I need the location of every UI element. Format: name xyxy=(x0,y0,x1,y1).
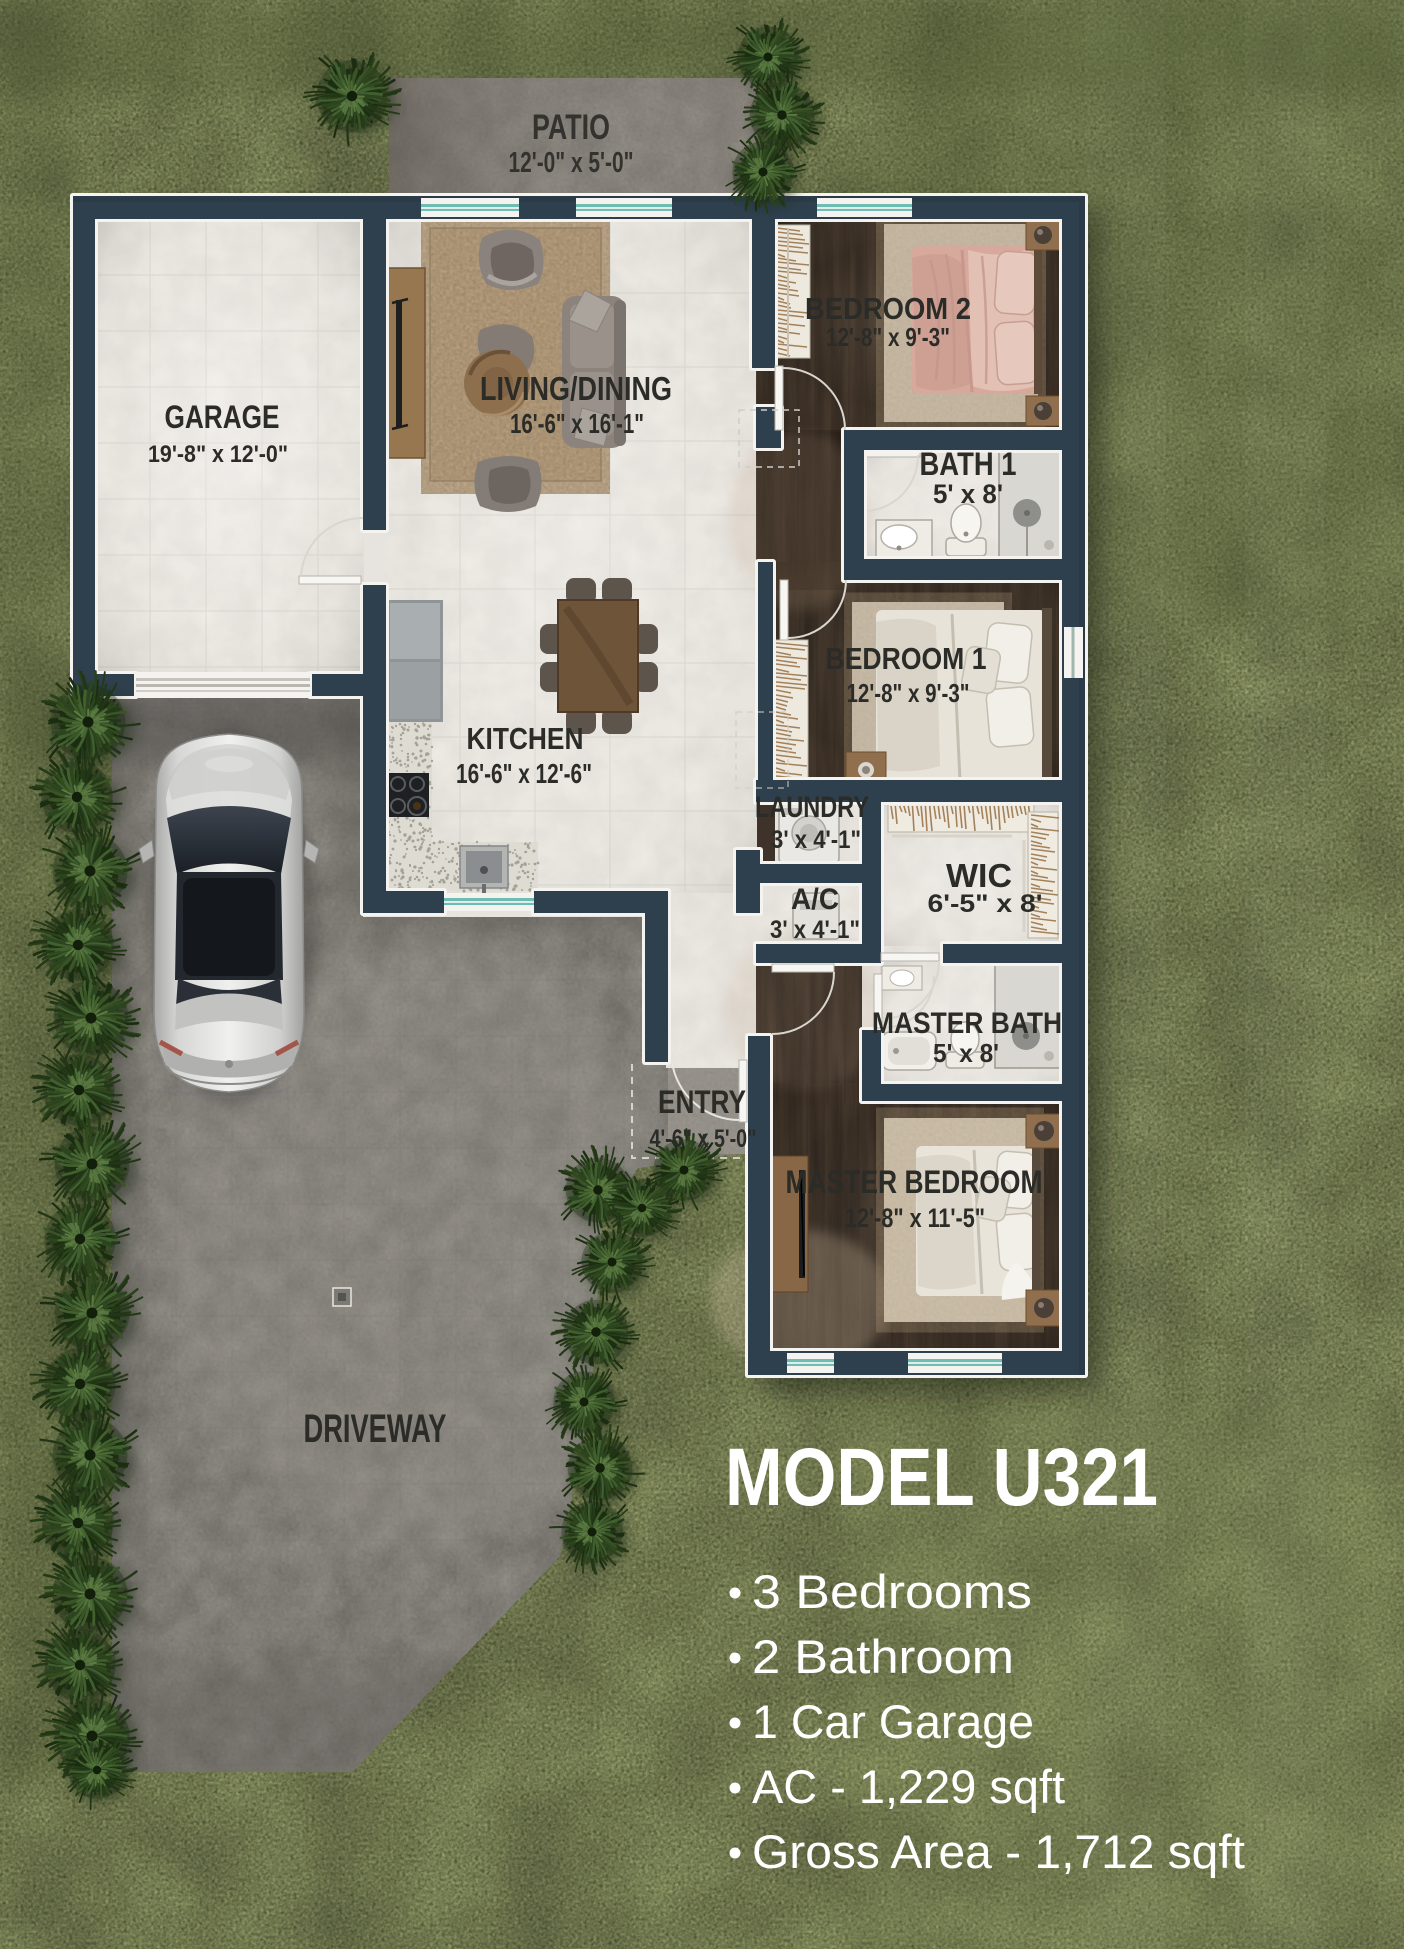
svg-text:PATIO: PATIO xyxy=(532,108,610,147)
svg-text:LIVING/DINING: LIVING/DINING xyxy=(480,370,672,407)
svg-text:5' x 8': 5' x 8' xyxy=(933,1038,999,1068)
svg-text:1 Car Garage: 1 Car Garage xyxy=(752,1695,1034,1748)
svg-text:A/C: A/C xyxy=(791,883,839,916)
svg-text:Gross Area - 1,712 sqft: Gross Area - 1,712 sqft xyxy=(752,1825,1245,1878)
svg-text:BATH 1: BATH 1 xyxy=(920,446,1017,482)
svg-text:12'-8" x 11'-5": 12'-8" x 11'-5" xyxy=(845,1203,985,1233)
svg-text:6'-5" x 8': 6'-5" x 8' xyxy=(928,890,1043,918)
svg-text:12'-0" x 5'-0": 12'-0" x 5'-0" xyxy=(509,147,634,179)
svg-text:ENTRY: ENTRY xyxy=(658,1084,746,1120)
svg-text:5' x 8': 5' x 8' xyxy=(933,479,1003,509)
svg-text:KITCHEN: KITCHEN xyxy=(467,721,584,756)
svg-text:MASTER BEDROOM: MASTER BEDROOM xyxy=(786,1164,1043,1200)
svg-text:12'-8" x 9'-3": 12'-8" x 9'-3" xyxy=(826,322,950,352)
svg-text:WIC: WIC xyxy=(946,857,1012,894)
svg-text:BEDROOM 1: BEDROOM 1 xyxy=(826,641,987,676)
svg-text:4'-6" x 5'-0": 4'-6" x 5'-0" xyxy=(650,1125,757,1153)
svg-text:BEDROOM 2: BEDROOM 2 xyxy=(805,291,971,326)
svg-text:3' x 4'-1": 3' x 4'-1" xyxy=(770,916,860,944)
svg-text:DRIVEWAY: DRIVEWAY xyxy=(304,1407,447,1451)
svg-text:3' x 4'-1": 3' x 4'-1" xyxy=(771,826,861,854)
svg-text:12'-8" x 9'-3": 12'-8" x 9'-3" xyxy=(847,678,970,708)
svg-text:LAUNDRY: LAUNDRY xyxy=(755,791,869,824)
svg-text:3 Bedrooms: 3 Bedrooms xyxy=(752,1565,1032,1618)
svg-text:2 Bathroom: 2 Bathroom xyxy=(752,1630,1014,1683)
svg-text:MASTER BATH: MASTER BATH xyxy=(872,1007,1062,1040)
svg-text:AC - 1,229 sqft: AC - 1,229 sqft xyxy=(752,1760,1065,1813)
svg-text:16'-6" x 16'-1": 16'-6" x 16'-1" xyxy=(510,408,644,439)
svg-text:16'-6" x 12'-6": 16'-6" x 12'-6" xyxy=(456,758,592,789)
svg-text:19'-8" x 12'-0": 19'-8" x 12'-0" xyxy=(148,441,288,468)
svg-text:MODEL U321: MODEL U321 xyxy=(725,1432,1158,1523)
svg-text:GARAGE: GARAGE xyxy=(165,399,280,435)
